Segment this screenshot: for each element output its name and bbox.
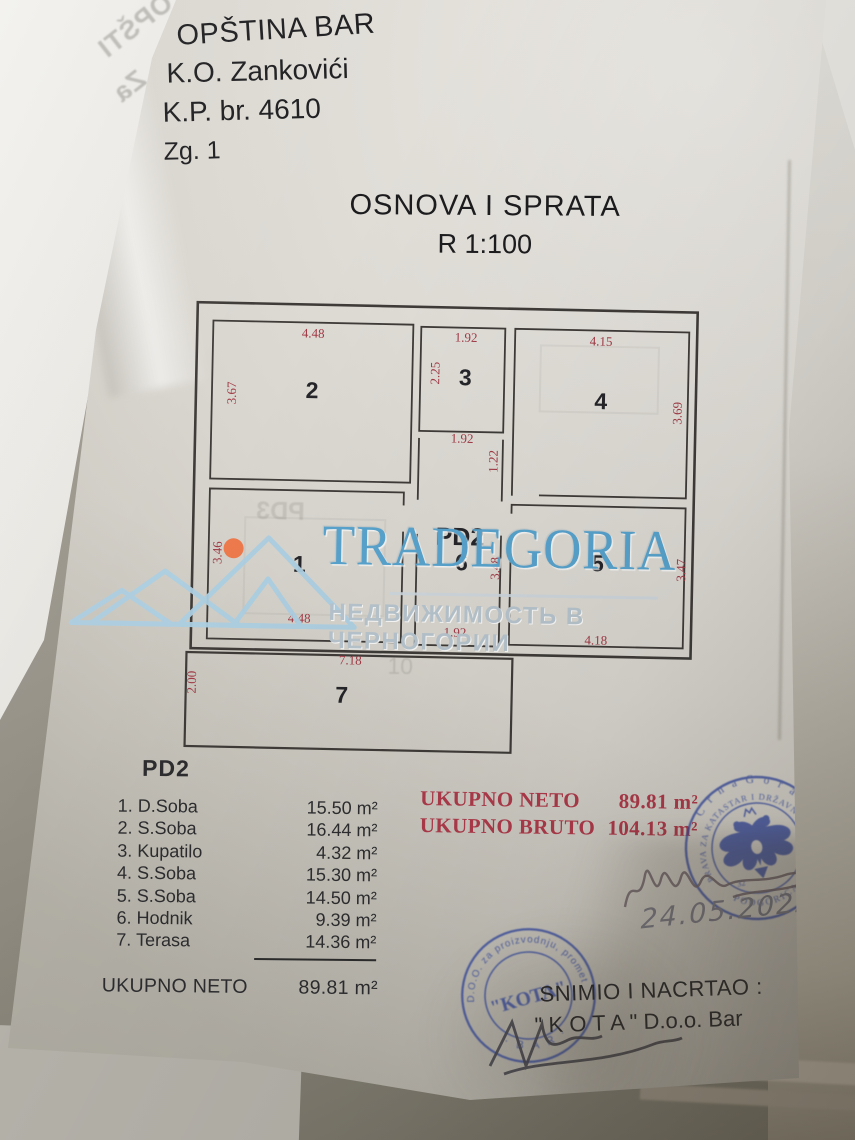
room-4-number: 4 [594, 388, 607, 415]
list-item: 1. D.Soba15.50 m² [104, 795, 404, 821]
row-area: 16.44 m² [267, 820, 377, 844]
list-item: 2. S.Soba16.44 m² [103, 818, 403, 844]
title-text: OSNOVA I SPRATA [285, 189, 685, 225]
list-total-row: UKUPNO NETO 89.81 m² [102, 974, 402, 1000]
row-label: 7. Terasa [116, 930, 266, 954]
dim-room2-top: 4.48 [302, 325, 325, 341]
scanned-document-photo: OPŠTI K.O. Za K.P. b Zg. OPŠTINA BAR K.O… [0, 0, 855, 1140]
dim-room3-top: 1.92 [455, 330, 478, 346]
list-item: 3. Kupatilo4.32 m² [103, 840, 403, 866]
ghost-10: 10 [387, 653, 413, 681]
dim-room4-top: 4.15 [590, 333, 613, 349]
row-label: 4. S.Soba [117, 863, 267, 887]
list-total-value: 89.81 m² [292, 976, 378, 1000]
list-item: 6. Hodnik9.39 m² [102, 907, 402, 933]
parcel-number: K.P. br. 4610 [162, 91, 378, 129]
row-area: 15.50 m² [268, 797, 378, 821]
list-total-label: UKUPNO NETO [102, 974, 292, 999]
dim-terrace-left: 2.00 [184, 671, 200, 694]
total-neto-row: UKUPNO NETO 89.81 m² [420, 786, 698, 817]
watermark-rule [390, 592, 658, 600]
total-neto-label: UKUPNO NETO [420, 786, 580, 815]
row-label: 2. S.Soba [117, 818, 267, 842]
total-bruto-label: UKUPNO BRUTO [420, 813, 596, 842]
watermark-subtitle: НЕДВИЖИМОСТЬ В ЧЕРНОГОРИИ [328, 599, 730, 662]
dim-room3-left: 2.25 [427, 362, 443, 385]
row-label: 5. S.Soba [117, 885, 267, 909]
row-area: 15.30 m² [267, 864, 377, 888]
watermark: TRADEGORIA НЕДВИЖИМОСТЬ В ЧЕРНОГОРИИ [49, 512, 731, 654]
municipality: OPŠTINA BAR [176, 8, 377, 53]
total-bruto-row: UKUPNO BRUTO 104.13 m² [420, 813, 698, 844]
room-2-number: 2 [305, 377, 318, 404]
sheet-right-edge [778, 160, 791, 740]
row-area: 14.50 m² [267, 887, 377, 911]
room-7-number: 7 [335, 682, 348, 709]
row-area: 9.39 m² [266, 909, 376, 933]
room-3-number: 3 [459, 364, 472, 391]
title-scale: R 1:100 [285, 228, 685, 262]
list-item: 4. S.Soba15.30 m² [103, 863, 403, 889]
list-item: 5. S.Soba14.50 m² [103, 885, 403, 911]
dim-room2-left: 3.67 [224, 381, 240, 404]
watermark-brand: TRADEGORIA [322, 513, 677, 584]
row-area: 4.32 m² [267, 842, 377, 866]
row-label: 3. Kupatilo [117, 840, 267, 864]
dim-corridor-top: 1.92 [450, 430, 473, 446]
dim-corridor-right: 1.22 [485, 450, 501, 473]
totals-block: UKUPNO NETO 89.81 m² UKUPNO BRUTO 104.13… [420, 786, 699, 844]
building-number: Zg. 1 [163, 132, 379, 167]
drawing-title: OSNOVA I SPRATA R 1:100 [285, 189, 685, 262]
room-list-rows: 1. D.Soba15.50 m² 2. S.Soba16.44 m² 3. K… [102, 795, 404, 955]
author-signature [478, 1012, 708, 1082]
list-sum-line [254, 958, 376, 961]
row-label: 6. Hodnik [116, 908, 266, 932]
row-label: 1. D.Soba [118, 796, 268, 820]
list-item: 7. Terasa14.36 m² [102, 930, 402, 956]
room-list-heading: PD2 [142, 755, 404, 785]
watermark-sun-dot [223, 538, 243, 558]
row-area: 14.36 m² [266, 931, 376, 955]
document-header: OPŠTINA BAR K.O. Zankovići K.P. br. 4610… [160, 11, 379, 167]
cadastre-municipality: K.O. Zankovići [166, 52, 377, 89]
room-list: PD2 1. D.Soba15.50 m² 2. S.Soba16.44 m² … [102, 754, 405, 1000]
dim-room4-right: 3.69 [669, 402, 685, 425]
